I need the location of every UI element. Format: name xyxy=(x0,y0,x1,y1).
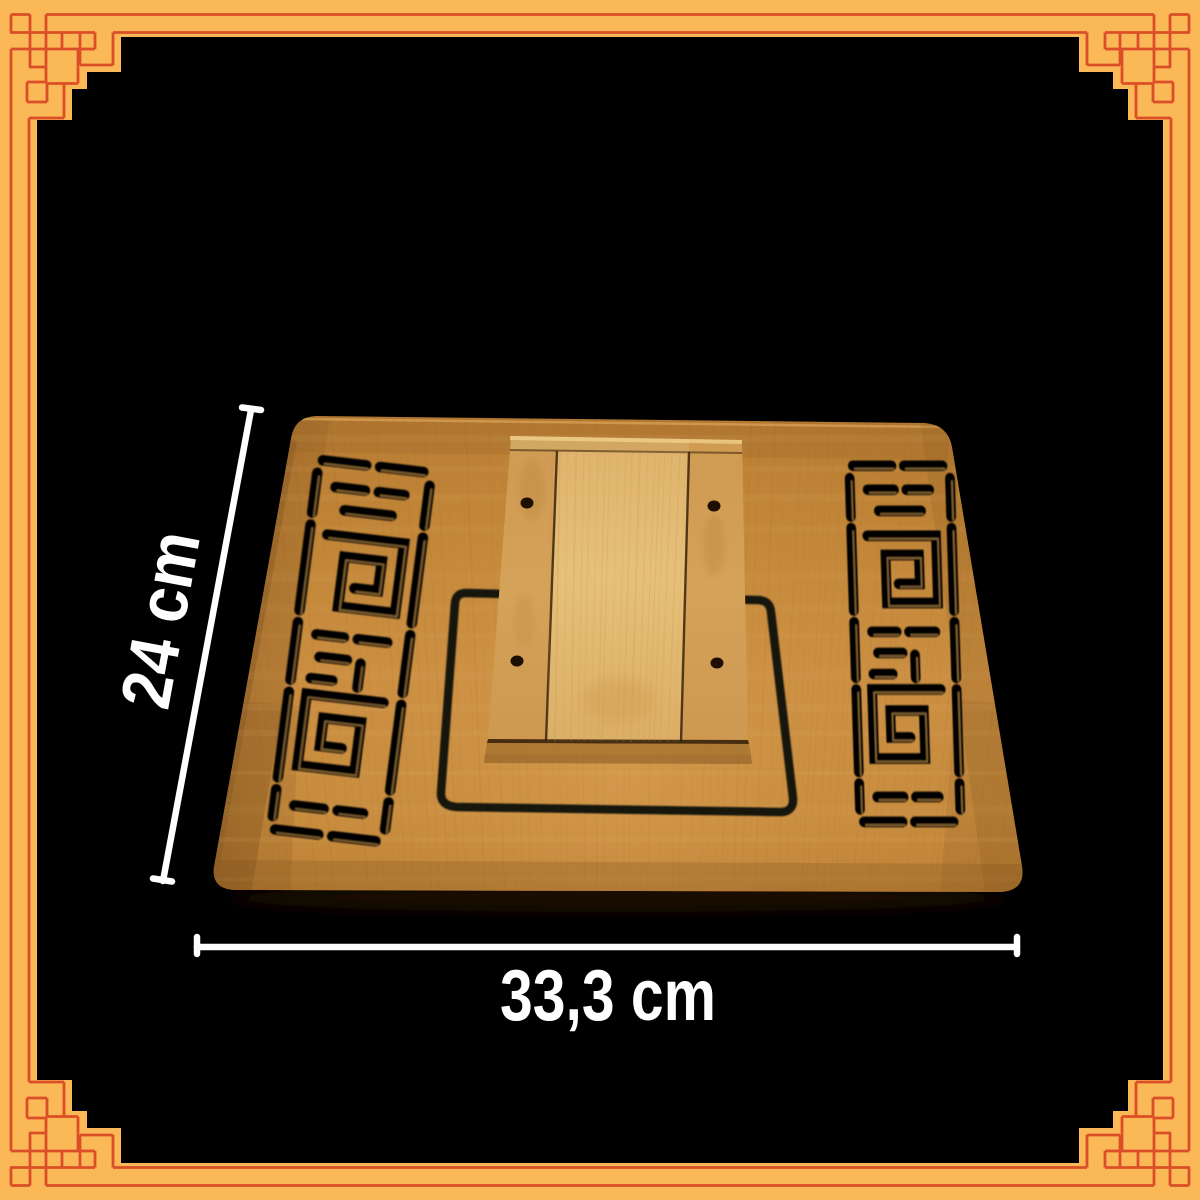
svg-text:33,3 cm: 33,3 cm xyxy=(500,956,716,1036)
